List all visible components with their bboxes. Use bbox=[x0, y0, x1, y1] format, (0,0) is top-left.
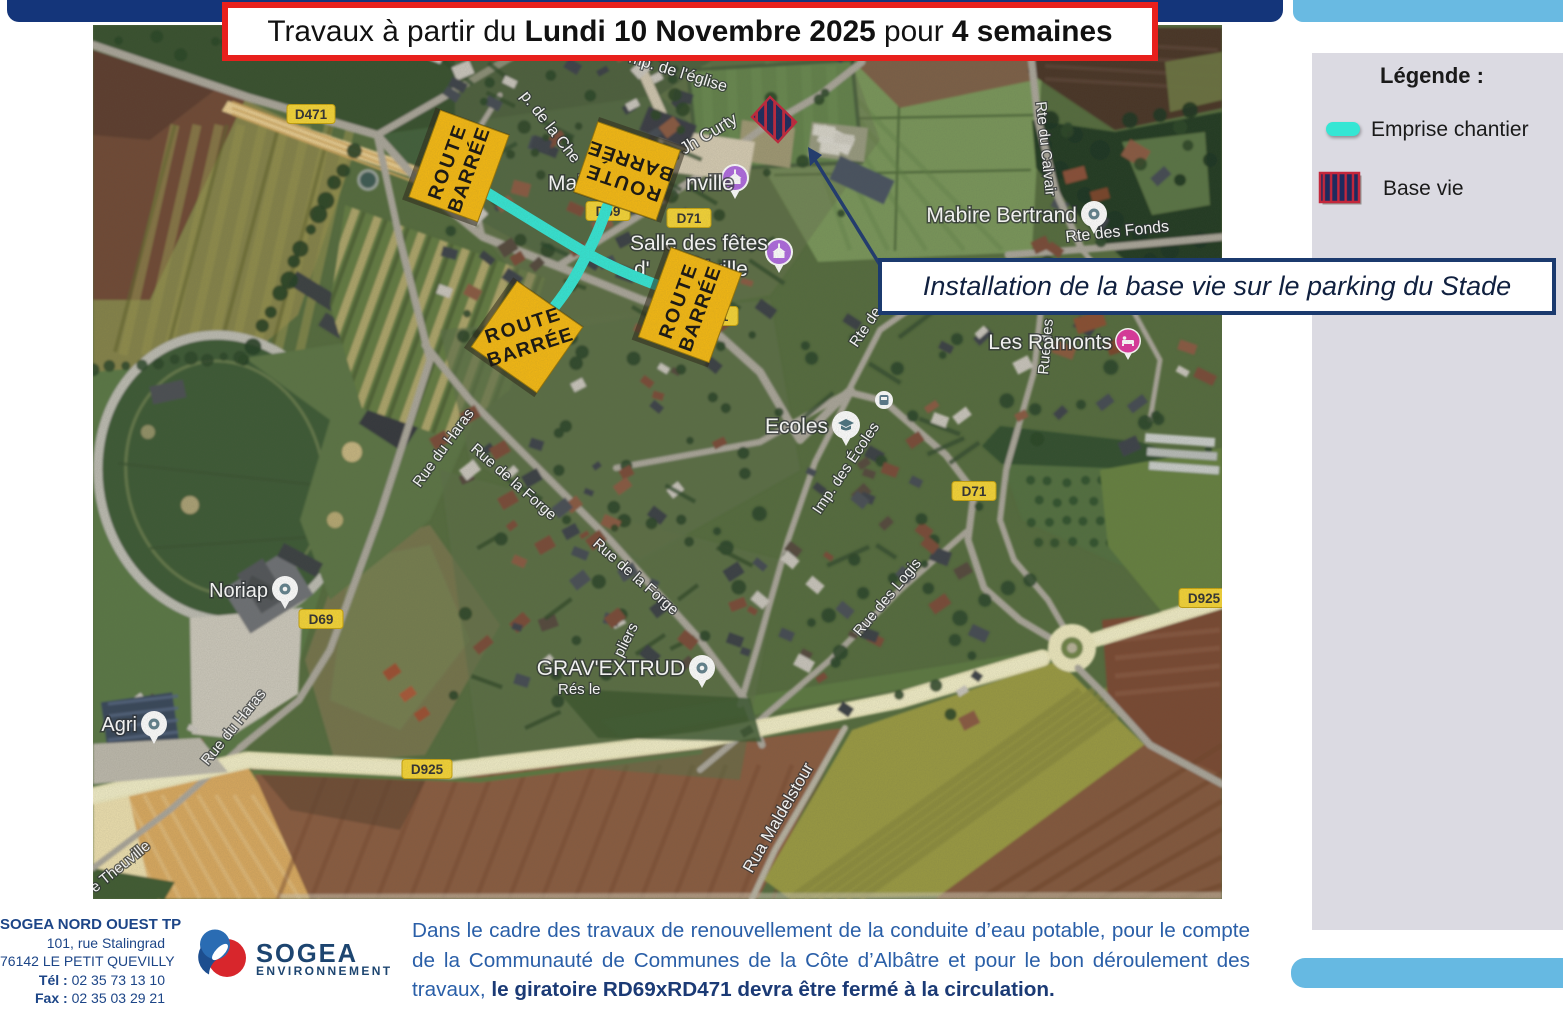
svg-text:ENVIRONNEMENT: ENVIRONNEMENT bbox=[256, 964, 393, 978]
